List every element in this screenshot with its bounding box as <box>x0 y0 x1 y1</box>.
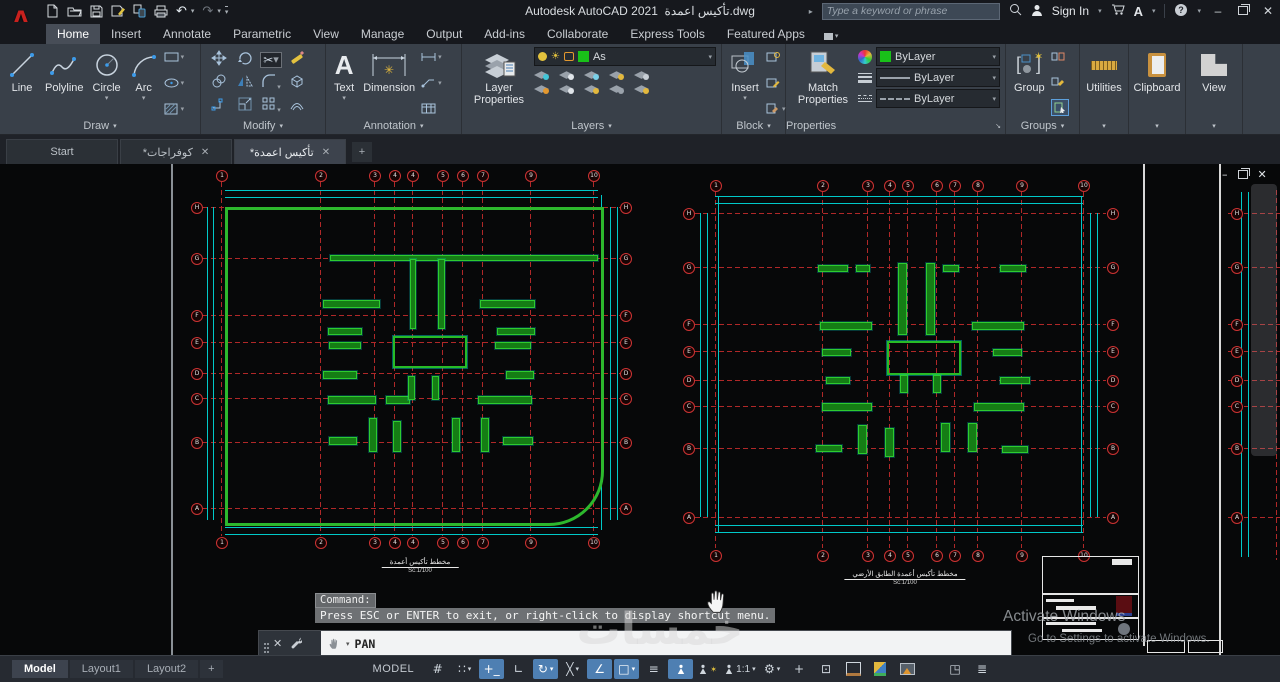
column-entity[interactable] <box>826 377 850 384</box>
match-properties-button[interactable]: Match Properties <box>791 47 855 118</box>
column-entity[interactable] <box>497 328 535 335</box>
column-entity[interactable] <box>818 265 848 272</box>
grid-line-vertical[interactable] <box>1021 192 1022 548</box>
grid-bubble[interactable]: B <box>191 437 203 449</box>
hatch-icon[interactable]: ▾ <box>164 101 185 116</box>
panel-block: Insert▾ ▾ Block▾ <box>722 44 786 134</box>
insert-button[interactable]: Insert▾ <box>727 47 763 118</box>
table-icon[interactable] <box>421 101 442 116</box>
ribbon-tab-annotate[interactable]: Annotate <box>152 24 222 44</box>
dimension-line[interactable] <box>1090 213 1091 517</box>
grid-line-vertical[interactable] <box>715 192 716 548</box>
dimension-line[interactable] <box>715 196 1083 197</box>
grid-bubble[interactable]: 5 <box>437 170 449 182</box>
autodesk-app-icon[interactable]: A <box>1134 4 1143 19</box>
grid-bubble[interactable]: 6 <box>931 550 943 562</box>
grid-line-vertical[interactable] <box>867 192 868 548</box>
grid-bubble[interactable]: C <box>683 401 695 413</box>
utilities-button[interactable]: Utilities <box>1083 47 1124 118</box>
grid-bubble[interactable]: 10 <box>1078 180 1090 192</box>
core-outline[interactable] <box>887 341 961 375</box>
grid-bubble[interactable]: F <box>683 319 695 331</box>
column-entity[interactable] <box>858 425 867 454</box>
copy-icon[interactable] <box>211 73 227 92</box>
column-entity[interactable] <box>329 342 361 349</box>
polyline-button[interactable]: Polyline <box>42 47 87 118</box>
grid-bubble[interactable]: 5 <box>902 180 914 192</box>
layer-tool-off-icon[interactable] <box>534 69 549 80</box>
layer-tool-lock-icon[interactable] <box>609 69 624 80</box>
customization-toggle[interactable]: ≣ <box>970 659 995 679</box>
object-snap-toggle[interactable]: □▾ <box>614 659 639 679</box>
ribbon-tab-express-tools[interactable]: Express Tools <box>619 24 715 44</box>
grid-bubble[interactable]: G <box>1231 262 1243 274</box>
column-entity[interactable] <box>974 403 1024 411</box>
layout-tab-layout2[interactable]: Layout2 <box>135 660 198 678</box>
layer-tool-merge-icon[interactable] <box>634 69 649 80</box>
grid-bubble[interactable]: H <box>1107 208 1119 220</box>
grid-bubble[interactable]: 5 <box>437 537 449 549</box>
column-entity[interactable] <box>495 342 531 349</box>
grid-bubble[interactable]: E <box>1231 346 1243 358</box>
grid-bubble[interactable]: 4 <box>407 537 419 549</box>
ribbon-tab-manage[interactable]: Manage <box>350 24 415 44</box>
grid-bubble[interactable]: F <box>1231 319 1243 331</box>
ribbon-tab-featured-apps[interactable]: Featured Apps <box>716 24 816 44</box>
grid-bubble[interactable]: D <box>620 368 632 380</box>
dimension-line[interactable] <box>610 207 611 520</box>
column-entity[interactable] <box>328 328 362 335</box>
panel-title-layers[interactable]: Layers▾ <box>462 118 721 134</box>
grid-bubble[interactable]: 10 <box>588 170 600 182</box>
snap-mode-toggle[interactable]: ∷▾ <box>452 659 477 679</box>
grid-line-horizontal[interactable] <box>695 406 1106 407</box>
grid-bubble[interactable]: C <box>1231 401 1243 413</box>
dimension-line[interactable] <box>1248 192 1249 557</box>
mirror-icon[interactable] <box>237 73 253 92</box>
dimension-line[interactable] <box>700 213 701 517</box>
grid-bubble[interactable]: 6 <box>931 180 943 192</box>
grid-line-vertical[interactable] <box>822 192 823 548</box>
grid-bubble[interactable]: 3 <box>369 537 381 549</box>
redo-dropdown[interactable]: ▾ <box>217 7 221 15</box>
block-editor-icon[interactable]: ▾ <box>766 101 786 116</box>
grid-bubble[interactable]: C <box>620 393 632 405</box>
grid-bubble[interactable]: G <box>1107 262 1119 274</box>
grid-bubble[interactable]: 4 <box>389 170 401 182</box>
grid-line-horizontal[interactable] <box>695 517 1106 518</box>
workspace-switching-toggle[interactable]: ⚙▾ <box>760 659 785 679</box>
column-entity[interactable] <box>1000 265 1026 272</box>
column-entity[interactable] <box>933 375 941 393</box>
group-edit-icon[interactable] <box>1051 74 1069 89</box>
grid-bubble[interactable]: 10 <box>588 537 600 549</box>
dimension-line[interactable] <box>225 534 598 535</box>
grid-bubble[interactable]: A <box>191 503 203 515</box>
grid-bubble[interactable]: 4 <box>884 180 896 192</box>
panel-title-clipboard[interactable]: ▾ <box>1129 118 1185 134</box>
column-entity[interactable] <box>480 300 535 308</box>
grid-bubble[interactable]: H <box>620 202 632 214</box>
sign-in-dropdown[interactable]: ▾ <box>1098 7 1102 15</box>
column-entity[interactable] <box>1002 446 1028 453</box>
fillet-icon[interactable]: ▾ <box>261 73 281 92</box>
grid-bubble[interactable]: 7 <box>949 180 961 192</box>
core-outline[interactable] <box>393 336 467 368</box>
new-file-icon[interactable] <box>46 4 59 18</box>
model-indicator[interactable]: MODEL <box>373 663 415 675</box>
column-entity[interactable] <box>993 349 1022 356</box>
create-block-icon[interactable] <box>766 49 786 64</box>
dimension-line[interactable] <box>715 203 1083 204</box>
layer-properties-button[interactable]: Layer Properties <box>467 47 531 118</box>
group-selection-on-icon[interactable] <box>1051 99 1069 116</box>
ribbon-tab-home[interactable]: Home <box>46 24 100 44</box>
customize-wrench-icon[interactable] <box>289 636 302 652</box>
column-entity[interactable] <box>822 403 872 411</box>
column-entity[interactable] <box>822 349 851 356</box>
rotate-icon[interactable] <box>237 50 253 69</box>
grid-bubble[interactable]: E <box>1107 346 1119 358</box>
dimension-line[interactable] <box>1241 192 1242 557</box>
hardware-acceleration-toggle[interactable] <box>895 659 920 679</box>
column-entity[interactable] <box>438 259 445 329</box>
ortho-mode-toggle[interactable]: ∟ <box>506 659 531 679</box>
grid-bubble[interactable]: D <box>683 375 695 387</box>
minimize-button[interactable]: – <box>1210 4 1226 18</box>
search-input[interactable]: Type a keyword or phrase <box>822 3 1000 20</box>
column-entity[interactable] <box>329 437 357 445</box>
grid-bubble[interactable]: 7 <box>477 170 489 182</box>
color-wheel-icon[interactable] <box>858 50 872 64</box>
grid-bubble[interactable]: B <box>620 437 632 449</box>
grid-line-vertical[interactable] <box>221 182 222 536</box>
column-entity[interactable] <box>898 263 907 335</box>
annotation-monitor-toggle[interactable]: + <box>787 659 812 679</box>
app-dropdown[interactable]: ▾ <box>1152 7 1156 15</box>
grid-bubble[interactable]: 4 <box>884 550 896 562</box>
rectangle-icon[interactable]: ▾ <box>164 49 185 64</box>
dimension-line[interactable] <box>715 532 1083 533</box>
grid-bubble[interactable]: 4 <box>389 537 401 549</box>
panel-title-block[interactable]: Block▾ <box>722 118 785 134</box>
help-dropdown[interactable]: ▾ <box>1197 7 1201 15</box>
navigation-bar[interactable] <box>1251 184 1277 456</box>
column-entity[interactable] <box>968 423 977 452</box>
grid-line-vertical[interactable] <box>977 192 978 548</box>
drawing-close-icon[interactable]: ✕ <box>1258 168 1267 181</box>
grid-bubble[interactable]: H <box>1231 208 1243 220</box>
ungroup-icon[interactable] <box>1051 49 1069 64</box>
lineweight-select[interactable]: ByLayer▾ <box>876 68 1000 87</box>
column-entity[interactable] <box>478 396 532 404</box>
drag-grip-icon[interactable] <box>264 643 266 645</box>
lineweight-display-toggle[interactable]: ≡ <box>641 659 666 679</box>
panel-title-properties[interactable]: Properties↘ <box>786 118 1005 134</box>
panel-title-view[interactable]: ▾ <box>1186 118 1242 134</box>
grid-bubble[interactable]: F <box>1107 319 1119 331</box>
panel-title-utilities[interactable]: ▾ <box>1080 118 1128 134</box>
plot-icon[interactable] <box>154 5 168 18</box>
view-button[interactable]: View <box>1198 47 1230 118</box>
grid-bubble[interactable]: C <box>1107 401 1119 413</box>
column-entity[interactable] <box>941 423 950 452</box>
grid-bubble[interactable]: 9 <box>1016 180 1028 192</box>
undo-dropdown[interactable]: ▾ <box>191 7 195 15</box>
grid-bubble[interactable]: D <box>191 368 203 380</box>
ribbon-tab-insert[interactable]: Insert <box>100 24 152 44</box>
dimension-line[interactable] <box>1097 213 1098 517</box>
plan-caption[interactable]: مخطط تأكيس أعمدةSc:1/100 <box>382 558 459 574</box>
column-entity[interactable] <box>900 375 908 393</box>
grid-bubble[interactable]: 1 <box>216 170 228 182</box>
column-entity[interactable] <box>386 396 410 404</box>
command-close-icon[interactable]: ✕ <box>273 637 282 650</box>
grid-bubble[interactable]: 2 <box>315 170 327 182</box>
layer-tool-lock-fade-icon[interactable] <box>609 83 624 94</box>
search-expand-icon[interactable]: ▸ <box>809 7 813 16</box>
redo-icon[interactable]: ↷ <box>202 4 213 19</box>
erase-icon[interactable] <box>289 50 305 69</box>
array-icon[interactable]: ▾ <box>261 96 281 115</box>
plan-caption[interactable]: مخطط تأكيس أعمدة الطابق الأرضيSc:1/100 <box>844 570 965 586</box>
column-entity[interactable] <box>323 300 380 308</box>
ribbon-tab-parametric[interactable]: Parametric <box>222 24 302 44</box>
grid-bubble[interactable]: A <box>1231 512 1243 524</box>
layout-tab-model[interactable]: Model <box>12 660 68 678</box>
open-from-web-mobile-icon[interactable] <box>133 4 146 18</box>
grid-bubble[interactable]: H <box>683 208 695 220</box>
dimension-line[interactable] <box>207 207 208 520</box>
column-entity[interactable] <box>856 265 870 272</box>
dimension-line[interactable] <box>213 207 214 520</box>
grid-bubble[interactable]: 3 <box>369 170 381 182</box>
restore-button[interactable] <box>1235 4 1251 18</box>
help-icon[interactable]: ? <box>1174 3 1188 20</box>
text-button[interactable]: A Text▾ <box>331 47 357 118</box>
file-tab-close-icon[interactable]: ✕ <box>201 147 209 158</box>
ribbon-tab-collaborate[interactable]: Collaborate <box>536 24 619 44</box>
dimension-button[interactable]: ✳ Dimension <box>360 47 418 118</box>
open-file-icon[interactable] <box>67 5 82 18</box>
grid-line-horizontal[interactable] <box>695 448 1106 449</box>
panel-title-modify[interactable]: Modify▾ <box>201 118 325 134</box>
annotation-autoscale-toggle[interactable]: ✶ <box>695 659 720 679</box>
layer-tool-copy-to-layer-icon[interactable] <box>634 83 649 94</box>
column-entity[interactable] <box>816 445 842 452</box>
search-icon[interactable] <box>1009 3 1022 19</box>
ribbon-tab-output[interactable]: Output <box>415 24 473 44</box>
column-entity[interactable] <box>820 322 872 330</box>
offset-icon[interactable] <box>289 96 305 115</box>
column-entity[interactable] <box>885 428 894 457</box>
leader-icon[interactable]: ▾ <box>421 75 442 90</box>
grid-bubble[interactable]: 5 <box>902 550 914 562</box>
graphics-performance-toggle[interactable] <box>868 659 893 679</box>
grid-bubble[interactable]: 9 <box>525 537 537 549</box>
arc-button[interactable]: Arc▾ <box>127 47 161 118</box>
grid-bubble[interactable]: 3 <box>862 550 874 562</box>
column-entity[interactable] <box>369 418 377 452</box>
grid-bubble[interactable]: 1 <box>216 537 228 549</box>
panel-title-annotation[interactable]: Annotation▾ <box>326 118 461 134</box>
file-tab[interactable]: *تأكيس اعمدة✕ <box>234 139 346 164</box>
grid-bubble[interactable]: H <box>191 202 203 214</box>
close-button[interactable]: ✕ <box>1260 4 1276 18</box>
grid-bubble[interactable]: C <box>191 393 203 405</box>
panel-title-draw[interactable]: Draw▾ <box>0 118 200 134</box>
column-entity[interactable] <box>926 263 935 335</box>
column-entity[interactable] <box>506 371 534 379</box>
grid-bubble[interactable]: 6 <box>457 537 469 549</box>
grid-bubble[interactable]: G <box>620 253 632 265</box>
grid-line-horizontal[interactable] <box>695 213 1106 214</box>
linetype-select[interactable]: ByLayer▾ <box>876 89 1000 108</box>
column-entity[interactable] <box>452 418 460 452</box>
dimension-line[interactable] <box>707 213 708 517</box>
linear-dimension-icon[interactable]: ▾ <box>421 49 442 64</box>
stretch-icon[interactable] <box>211 96 227 115</box>
grid-bubble[interactable]: 1 <box>710 180 722 192</box>
grid-bubble[interactable]: B <box>1107 443 1119 455</box>
grid-bubble[interactable]: 3 <box>862 180 874 192</box>
grid-line-vertical[interactable] <box>1083 192 1084 548</box>
grid-bubble[interactable]: D <box>1231 375 1243 387</box>
dynamic-input-toggle[interactable]: +_ <box>479 659 504 679</box>
grid-bubble[interactable]: 7 <box>949 550 961 562</box>
command-prompt[interactable]: Command: <box>315 593 376 608</box>
app-store-cart-icon[interactable] <box>1111 3 1125 19</box>
ribbon-tab-view[interactable]: View <box>302 24 350 44</box>
command-input[interactable]: ▾ PAN <box>321 631 1011 656</box>
grid-bubble[interactable]: 2 <box>817 550 829 562</box>
new-layout-button[interactable]: + <box>200 660 222 678</box>
panel-title-groups[interactable]: Groups▾ <box>1006 118 1079 134</box>
file-tab[interactable]: *كوفراجات✕ <box>120 139 232 164</box>
layer-tool-isolate-icon[interactable] <box>559 69 574 80</box>
column-entity[interactable] <box>408 376 415 400</box>
grid-bubble[interactable]: D <box>1107 375 1119 387</box>
column-entity[interactable] <box>481 418 489 452</box>
column-entity[interactable] <box>330 255 598 261</box>
column-entity[interactable] <box>432 376 439 400</box>
ellipse-icon[interactable]: ▾ <box>164 75 185 90</box>
grid-bubble[interactable]: 2 <box>315 537 327 549</box>
qat-customize-icon[interactable]: ▾ <box>225 6 229 16</box>
object-snap-tracking-toggle[interactable]: ∠ <box>587 659 612 679</box>
move-icon[interactable] <box>211 50 227 69</box>
grid-bubble[interactable]: 8 <box>972 550 984 562</box>
file-tab-close-icon[interactable]: ✕ <box>322 147 330 158</box>
plot-toggle[interactable] <box>841 659 866 679</box>
column-entity[interactable] <box>328 396 376 404</box>
grid-bubble[interactable]: G <box>191 253 203 265</box>
undo-icon[interactable]: ↶ <box>176 4 187 19</box>
layer-select[interactable]: ☀ As ▾ <box>534 47 716 66</box>
dimension-line[interactable] <box>617 207 618 520</box>
quick-properties-toggle[interactable]: ⊡ <box>814 659 839 679</box>
layer-tool-freeze-icon[interactable] <box>584 69 599 80</box>
grid-bubble[interactable]: A <box>683 512 695 524</box>
column-entity[interactable] <box>1000 377 1030 384</box>
grid-bubble[interactable]: 2 <box>817 180 829 192</box>
explode-icon[interactable] <box>289 73 305 92</box>
group-button[interactable]: []✶ Group <box>1011 47 1048 118</box>
dimension-line[interactable] <box>225 190 598 191</box>
save-icon[interactable] <box>90 5 103 18</box>
column-entity[interactable] <box>410 259 416 329</box>
grid-display-toggle[interactable]: # <box>425 659 450 679</box>
column-entity[interactable] <box>943 265 959 272</box>
column-entity[interactable] <box>393 421 401 452</box>
annotation-scale-toggle[interactable]: 1:1▾ <box>722 659 757 679</box>
grid-bubble[interactable]: 7 <box>477 537 489 549</box>
layout-tab-layout1[interactable]: Layout1 <box>70 660 133 678</box>
grid-bubble[interactable]: F <box>620 310 632 322</box>
layer-tool-previous-icon[interactable] <box>584 83 599 94</box>
column-entity[interactable] <box>972 322 1024 330</box>
scale-icon[interactable] <box>237 96 253 115</box>
grid-bubble[interactable]: E <box>620 337 632 349</box>
isometric-drafting-toggle[interactable]: ╳▾ <box>560 659 585 679</box>
polar-tracking-toggle[interactable]: ↻▾ <box>533 659 558 679</box>
layer-tool-match-layer-icon[interactable] <box>559 83 574 94</box>
command-dock-handle[interactable]: ✕ <box>259 631 321 656</box>
grid-bubble[interactable]: E <box>683 346 695 358</box>
annotation-visibility-toggle[interactable] <box>668 659 693 679</box>
grid-bubble[interactable]: B <box>1231 443 1243 455</box>
ribbon-tab-add-ins[interactable]: Add-ins <box>473 24 536 44</box>
trim-icon[interactable]: ✂▾ <box>260 52 282 68</box>
grid-bubble[interactable]: 9 <box>1016 550 1028 562</box>
layer-tool-make-current-icon[interactable] <box>534 83 549 94</box>
clipboard-button[interactable]: Clipboard <box>1130 47 1183 118</box>
grid-bubble[interactable]: 4 <box>407 170 419 182</box>
dimension-line[interactable] <box>715 525 1083 526</box>
drawing-minimize-icon[interactable]: – <box>1222 168 1228 181</box>
title-block[interactable] <box>1042 556 1139 642</box>
grid-bubble[interactable]: 1 <box>710 550 722 562</box>
sign-in-label[interactable]: Sign In <box>1052 4 1089 18</box>
sign-in-icon[interactable] <box>1031 4 1043 19</box>
column-entity[interactable] <box>503 437 533 445</box>
grid-bubble[interactable]: A <box>1107 512 1119 524</box>
new-drawing-tab-button[interactable]: + <box>352 142 372 162</box>
grid-bubble[interactable]: 8 <box>972 180 984 192</box>
edit-attribute-icon[interactable] <box>766 75 786 90</box>
clean-screen-toggle[interactable]: ◳ <box>943 659 968 679</box>
grid-bubble[interactable]: 9 <box>525 170 537 182</box>
ribbon-display-toggle[interactable]: ▾ <box>824 32 839 44</box>
grid-bubble[interactable]: 6 <box>457 170 469 182</box>
grid-bubble[interactable]: E <box>191 337 203 349</box>
save-as-icon[interactable] <box>111 5 125 18</box>
dimension-line[interactable] <box>718 196 719 532</box>
dimension-line[interactable] <box>225 527 598 528</box>
grid-bubble[interactable]: F <box>191 310 203 322</box>
grid-bubble[interactable]: A <box>620 503 632 515</box>
dimension-line[interactable] <box>225 197 598 198</box>
grid-bubble[interactable]: B <box>683 443 695 455</box>
dimension-line[interactable] <box>1081 196 1082 532</box>
file-tab[interactable]: Start <box>6 139 118 164</box>
column-entity[interactable] <box>323 371 357 379</box>
grid-bubble[interactable]: G <box>683 262 695 274</box>
drawing-restore-icon[interactable] <box>1238 170 1248 179</box>
object-color-select[interactable]: ByLayer▾ <box>876 47 1000 66</box>
circle-button[interactable]: Circle▾ <box>90 47 124 118</box>
line-button[interactable]: Line <box>5 47 39 118</box>
